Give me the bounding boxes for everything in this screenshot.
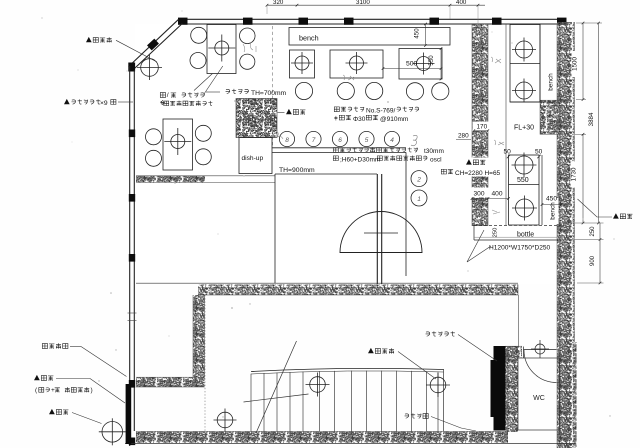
svg-text:50: 50: [535, 149, 543, 156]
svg-text:oscl: oscl: [430, 156, 442, 163]
svg-text:900: 900: [590, 255, 596, 266]
svg-text:250: 250: [493, 228, 499, 238]
svg-text:450: 450: [546, 196, 557, 203]
svg-text:@910mm: @910mm: [380, 116, 408, 123]
svg-text:170: 170: [477, 124, 488, 131]
svg-text:280: 280: [458, 133, 469, 140]
svg-text:550: 550: [517, 177, 529, 184]
svg-text:TH=900mm: TH=900mm: [279, 167, 315, 174]
svg-text:3884: 3884: [588, 112, 595, 126]
svg-text:2: 2: [416, 177, 421, 184]
svg-text:): ): [91, 387, 93, 394]
svg-text:H1200*W1750*D250: H1200*W1750*D250: [489, 245, 551, 252]
svg-text:4: 4: [390, 137, 394, 144]
svg-text:450: 450: [414, 28, 421, 39]
svg-text:+: +: [334, 116, 338, 123]
svg-text:1500: 1500: [572, 57, 579, 71]
svg-text:+: +: [51, 387, 55, 394]
svg-text:550: 550: [428, 55, 435, 66]
svg-text:/: /: [167, 92, 169, 99]
svg-text:;H60+D30mm: ;H60+D30mm: [340, 156, 380, 163]
svg-text:300: 300: [474, 191, 485, 198]
svg-text:FL+30: FL+30: [514, 125, 534, 132]
svg-text:Φ30: Φ30: [353, 116, 366, 123]
svg-text:3100: 3100: [356, 0, 370, 6]
svg-text:dish-up: dish-up: [242, 155, 264, 162]
svg-text:bench: bench: [548, 73, 555, 91]
svg-text:WC: WC: [533, 395, 545, 402]
svg-text:6: 6: [338, 137, 342, 144]
svg-text:1730: 1730: [571, 167, 578, 181]
svg-text:t30mm: t30mm: [424, 148, 444, 155]
svg-text:7: 7: [312, 137, 316, 144]
svg-text:250: 250: [590, 226, 596, 237]
svg-text:400: 400: [492, 191, 503, 198]
svg-text:50: 50: [504, 149, 512, 156]
svg-text:bench: bench: [299, 34, 319, 43]
svg-text:500: 500: [406, 61, 418, 68]
svg-text:5: 5: [365, 137, 369, 144]
svg-text:400: 400: [456, 0, 467, 6]
svg-text:320: 320: [273, 0, 284, 6]
svg-text:1: 1: [417, 196, 421, 203]
svg-text:×9: ×9: [100, 100, 108, 107]
svg-text:8: 8: [285, 137, 289, 144]
svg-text:bottle: bottle: [517, 232, 534, 239]
svg-text:No.S-769/: No.S-769/: [366, 107, 395, 114]
svg-text:TH=700mm: TH=700mm: [251, 90, 287, 97]
svg-text:CH=2280 H=65: CH=2280 H=65: [455, 170, 501, 177]
